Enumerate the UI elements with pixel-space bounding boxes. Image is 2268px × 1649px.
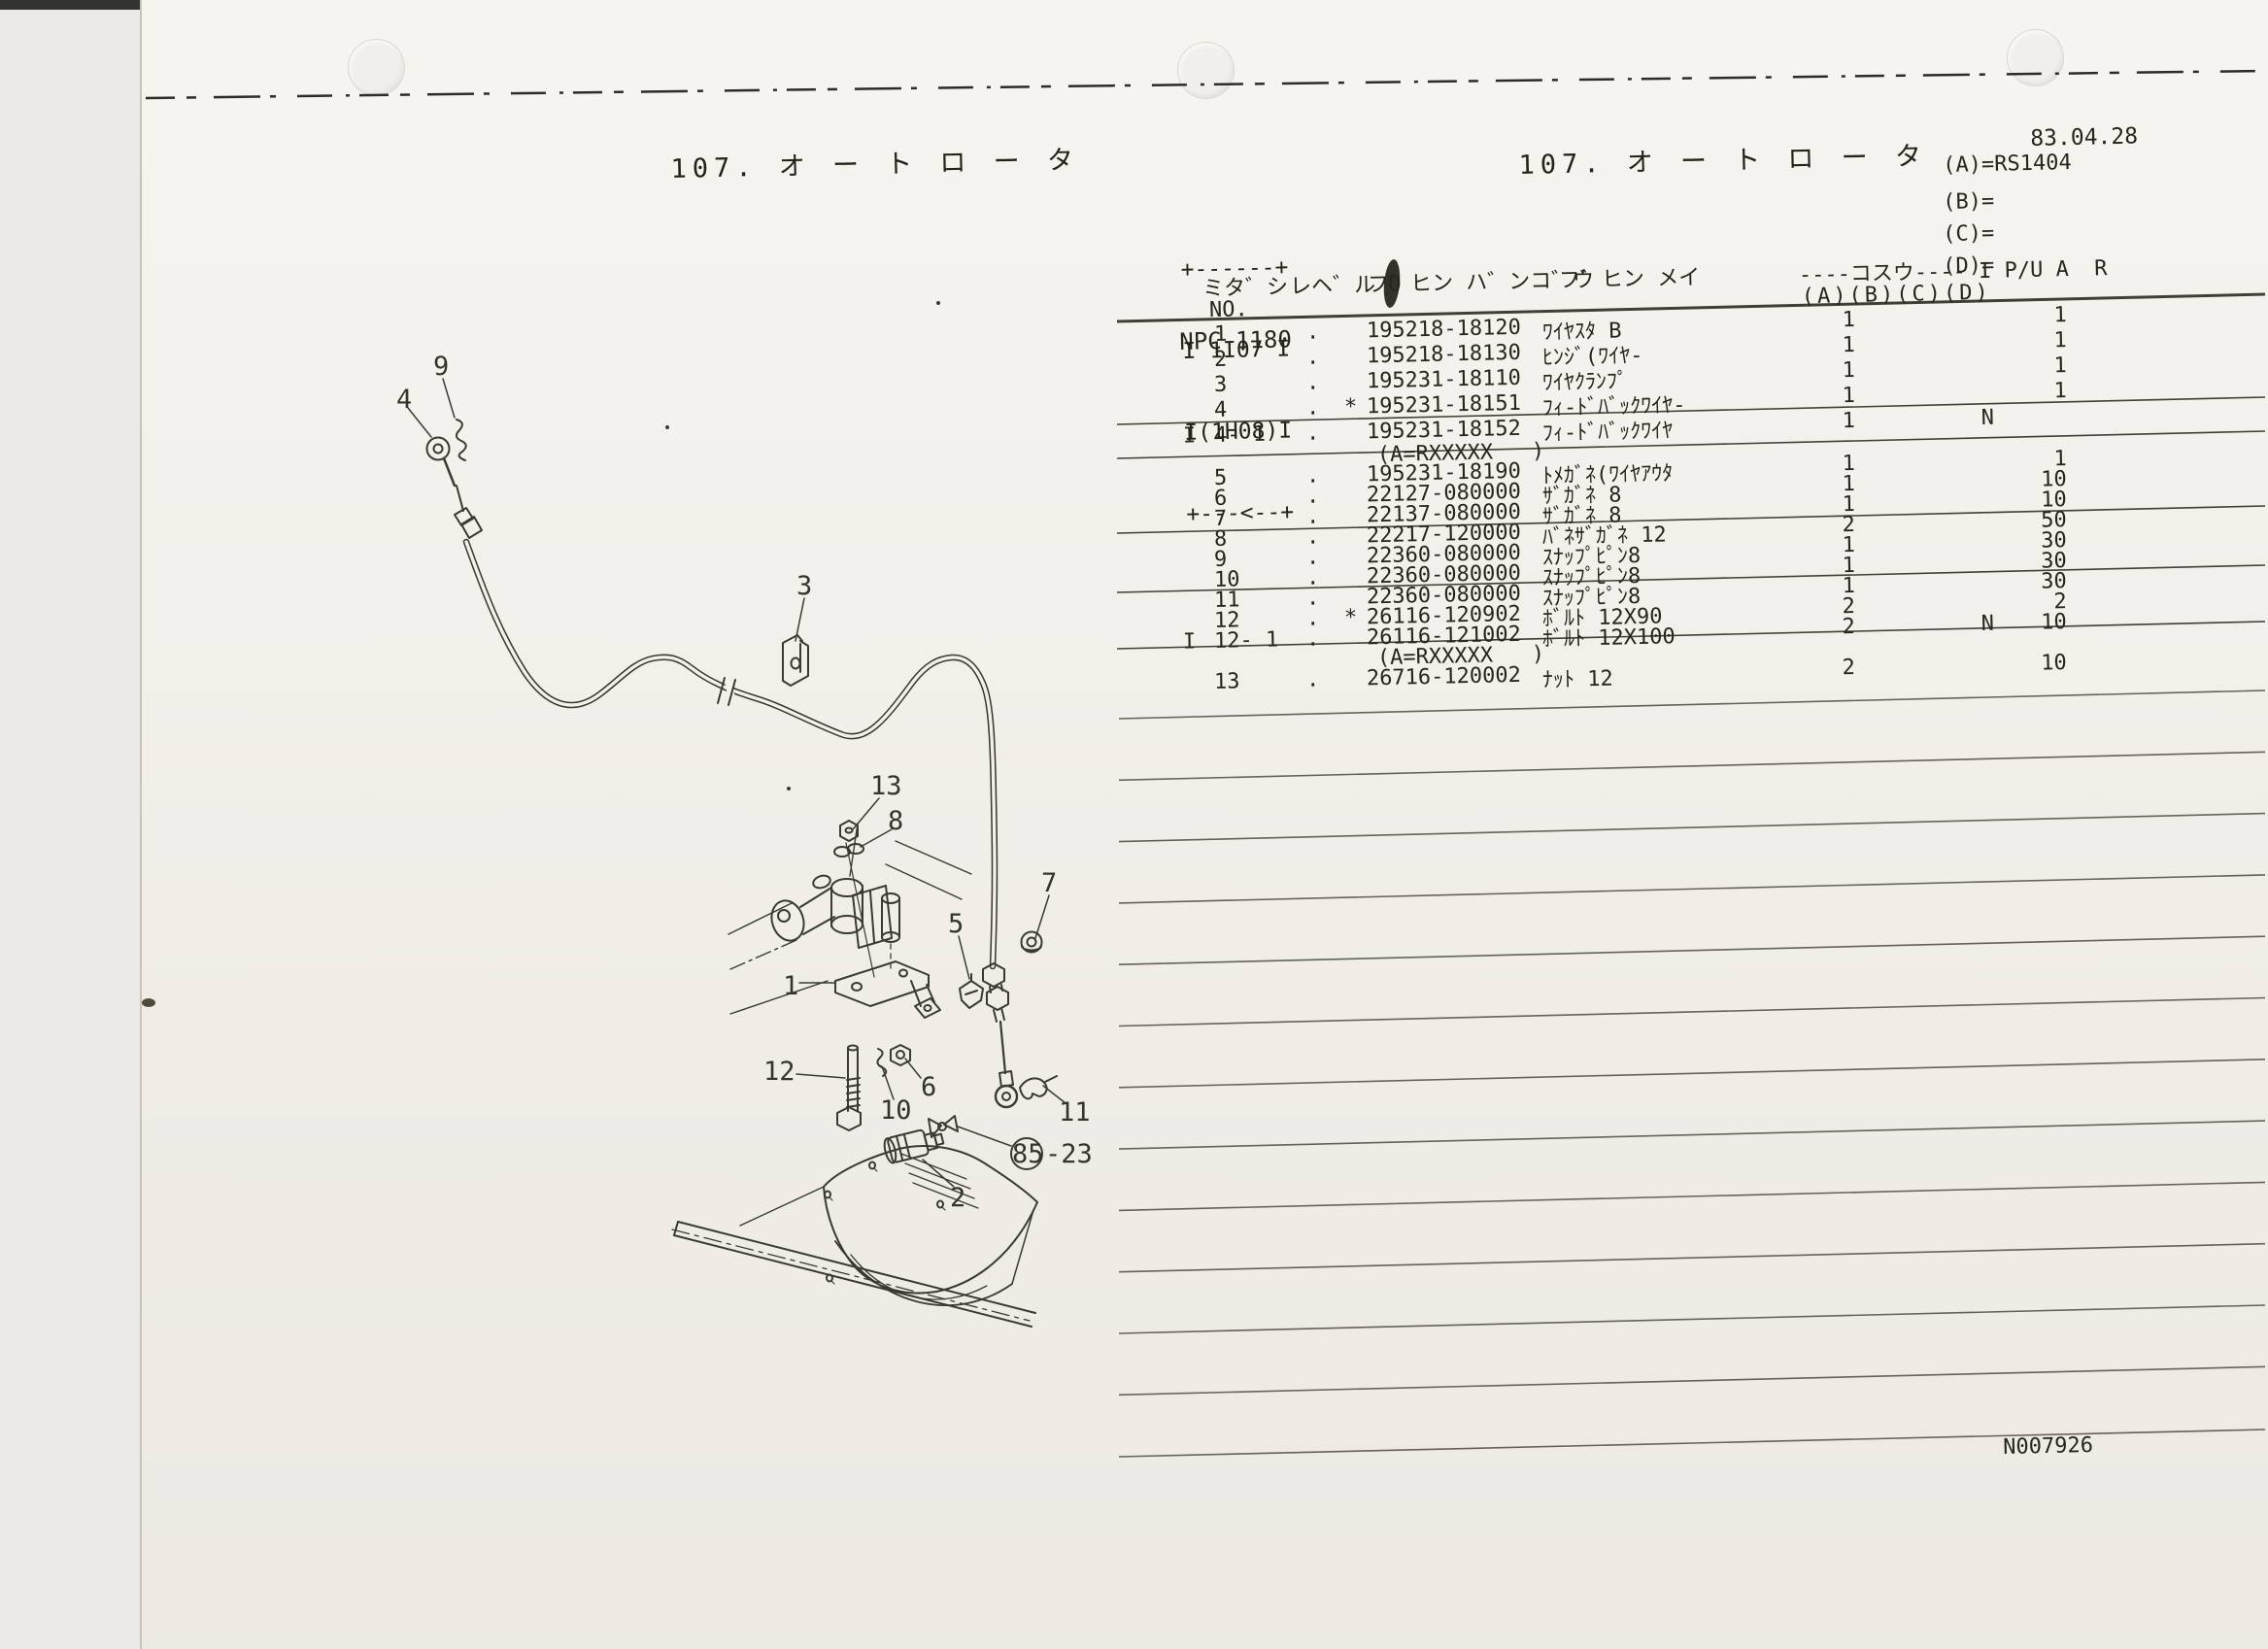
header-no: NO. [1209, 297, 1248, 322]
cell-qty-a: 1 [1758, 308, 1856, 334]
ref-suffix-label: -23 [1045, 1139, 1093, 1169]
exploded-parts-diagram: 4931385711261011285-23 [291, 194, 1166, 1408]
applicability-line: (B)= [1943, 189, 1995, 215]
scan-speck [142, 998, 155, 1007]
wing-fastener [929, 1116, 958, 1137]
callout-label: 2 [950, 1183, 965, 1213]
doc-number: N007926 [2003, 1433, 2093, 1460]
control-cable [466, 542, 995, 966]
cell-star: * [1344, 395, 1358, 420]
cell-r-value: 1 [2000, 379, 2067, 405]
linkage-assembly [766, 874, 899, 971]
cell-item-no: 4 [1214, 398, 1228, 422]
inner-wire [1000, 1022, 1005, 1073]
callout-label: 1 [783, 971, 798, 1001]
page-top-dashed-line [146, 71, 2263, 98]
cable-clip [960, 974, 983, 1008]
callout-labels: 4931385711261011285-23 [396, 352, 1093, 1213]
bracket-plate [835, 961, 940, 1018]
empty-ledger-lines [1119, 690, 2265, 1457]
cell-pu-flag: N [1980, 405, 2020, 430]
nut-part [891, 1045, 910, 1065]
callout-label: 8 [888, 806, 903, 836]
cell-qty-a: 1 [1758, 333, 1856, 359]
rule-line [1119, 1121, 2265, 1149]
rule-line [1119, 875, 2265, 903]
cell-qty-a: 1 [1758, 409, 1856, 435]
callout-label: 11 [1059, 1097, 1091, 1127]
ref-circle-label: 85 [1012, 1139, 1044, 1169]
context-lines [728, 824, 971, 1226]
cell-interchange-flag: I [1183, 423, 1197, 448]
cell-r-value: 10 [2000, 651, 2067, 677]
cell-level: . [1306, 396, 1320, 421]
cell-qty-a: 1 [1758, 384, 1856, 410]
cell-r-value: 1 [2000, 303, 2067, 329]
callout-label: 7 [1041, 868, 1057, 898]
rule-line [1119, 936, 2265, 964]
cell-qty-a: 2 [1758, 656, 1856, 682]
rule-line [1119, 1366, 2265, 1395]
rule-line [1119, 690, 2265, 719]
cable-eyelet [427, 438, 450, 460]
cell-part-name: ﾅｯﾄ 12 [1542, 661, 1613, 694]
callout-label: 13 [870, 771, 902, 801]
cell-part-number: 195231-18151 [1367, 391, 1521, 420]
cell-part-number: 195231-18110 [1367, 366, 1521, 394]
frame-rail [672, 1222, 1035, 1327]
cell-level: . [1306, 668, 1320, 692]
cell-part-number: 26716-120002 [1367, 663, 1521, 691]
cell-part-number: 195218-18120 [1367, 316, 1521, 344]
callout-label: 4 [396, 385, 412, 415]
lever-part [1020, 1076, 1057, 1098]
callout-label: 10 [880, 1095, 912, 1126]
cell-qty-a: 1 [1758, 358, 1856, 385]
cell-level: . [1306, 421, 1320, 446]
cell-part-number: 195218-18130 [1367, 341, 1521, 369]
callout-label: 3 [796, 571, 812, 601]
rule-line [1119, 1244, 2265, 1272]
rule-line [1119, 998, 2265, 1026]
cell-level: . [1306, 320, 1320, 345]
cell-item-no: 13 [1214, 669, 1240, 694]
rule-line [1119, 1060, 2265, 1088]
cell-item-no: 1 [1214, 322, 1228, 347]
clevis-end [996, 1071, 1017, 1107]
cell-level: . [1306, 346, 1320, 370]
wire-clamp [783, 635, 808, 686]
scanned-parts-catalog-page: { "page": { "date": "83.04.28", "left_ti… [0, 0, 2268, 1649]
cell-r-value: 1 [2000, 328, 2067, 354]
rule-line [1119, 752, 2265, 780]
callout-label: 5 [948, 909, 964, 939]
bolt-part [837, 1046, 861, 1131]
callout-label: 9 [433, 352, 449, 382]
cell-item-no: 2 [1214, 348, 1228, 372]
callout-leader-lines [408, 379, 1066, 1187]
clip-part [457, 420, 466, 460]
clip-part [877, 1049, 886, 1076]
applicability-line: (C)= [1943, 221, 1995, 247]
nut-part [1022, 932, 1042, 953]
cell-r-value: 1 [2000, 353, 2067, 380]
revision-date: 83.04.28 [2030, 123, 2138, 151]
cell-item-no: 4- 1 [1214, 422, 1267, 448]
cable-adjuster [983, 963, 1008, 1022]
callout-label: 12 [763, 1057, 795, 1087]
cell-level: . [1306, 371, 1320, 395]
rule-line [1119, 814, 2265, 842]
applicability-line: (A)=RS1404 [1943, 151, 2072, 178]
callout-label: 6 [921, 1072, 936, 1102]
rule-line [1119, 1182, 2265, 1210]
rule-line [1119, 1305, 2265, 1333]
cell-item-no: 3 [1214, 373, 1228, 397]
